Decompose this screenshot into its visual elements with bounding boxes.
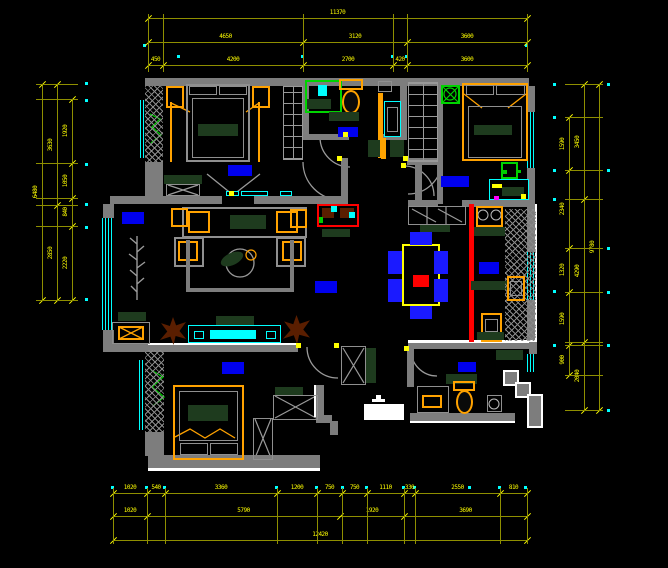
extension-line [147, 488, 148, 544]
sliding-door-panel-2 [241, 191, 268, 196]
dimension-label: 2550 [446, 485, 470, 491]
dimension-label: 3600 [455, 57, 479, 63]
dimension-label: 3690 [454, 508, 478, 514]
kitchen-counter-1 [474, 227, 505, 236]
bath2-east-wall [529, 342, 537, 354]
kitchen-hatched-counter [505, 209, 536, 341]
dimension-label: 9780 [590, 232, 596, 262]
dimension-label: 840 [63, 197, 69, 227]
reference-point [607, 247, 610, 250]
dimension-line [57, 84, 58, 300]
room-label-bedroom2 [441, 176, 469, 187]
reference-point [553, 290, 556, 293]
desk-dot-magenta [494, 196, 499, 200]
dimension-label: 1050 [63, 166, 69, 196]
extension-line [565, 84, 603, 85]
dimension-label: 3120 [343, 34, 367, 40]
dining-chair-e2 [434, 279, 448, 302]
hatch-wall-topleft [145, 86, 163, 162]
reference-point [85, 99, 88, 102]
dimension-label: 1590 [560, 304, 566, 334]
extension-line [565, 170, 603, 171]
bath2-south-edge [410, 421, 515, 423]
wall-living-north-b [146, 196, 222, 204]
reference-point [553, 198, 556, 201]
console-vase-2 [349, 212, 355, 218]
dimension-label: 750 [343, 485, 367, 491]
dimension-label: 5790 [232, 508, 256, 514]
shower-bench [307, 99, 331, 109]
bench-top [118, 326, 144, 340]
reference-point [85, 163, 88, 166]
window-bedroom2 [527, 112, 536, 168]
tv-speaker [216, 316, 254, 325]
dimension-label: 1590 [560, 129, 566, 159]
extension-line [407, 14, 408, 72]
bedroom3-south-edge [148, 468, 320, 471]
dimension-label: 330 [398, 485, 422, 491]
kitchen-counter-2 [471, 281, 508, 290]
extension-line [163, 14, 164, 72]
bedroom3-closet-v [253, 418, 273, 460]
extension-line [527, 14, 528, 72]
canopy-post-right [258, 102, 260, 162]
bed3-drawer-r [210, 443, 238, 455]
door-hinge-mark [334, 343, 339, 348]
corridor-cabinet [366, 348, 376, 383]
dimension-label: 750 [318, 485, 342, 491]
extension-line [36, 84, 78, 85]
shoe-cabinet-left [368, 140, 380, 157]
entry-door-leaf [381, 138, 386, 159]
dimension-label: 810 [502, 485, 526, 491]
dimension-line [148, 65, 527, 66]
dimension-label: 2220 [63, 248, 69, 278]
dining-chair-e1 [434, 251, 448, 274]
extension-line [565, 342, 603, 343]
bed3-drawer-l [180, 443, 208, 455]
room-label-hall [315, 281, 337, 293]
shower-head [318, 85, 327, 96]
sofa-front-bottom [186, 288, 294, 292]
step-3 [529, 396, 541, 426]
bath1-counter [329, 112, 359, 121]
kitchen-sink-basin [510, 281, 522, 296]
dining-table-center [413, 275, 429, 287]
reference-point [607, 344, 610, 347]
dimension-label: 3360 [209, 485, 233, 491]
tv-box-right [266, 331, 276, 339]
extension-line [565, 375, 603, 376]
sofa-cushion-left [188, 211, 210, 233]
reference-point [607, 409, 610, 412]
extension-line [36, 163, 78, 164]
reference-point [85, 298, 88, 301]
dining-chair-w2 [388, 279, 402, 302]
canopy-post-left [170, 102, 172, 162]
extension-line [342, 488, 343, 544]
door-hinge-mark [401, 163, 406, 168]
reference-point [177, 55, 180, 58]
extension-line [303, 14, 304, 72]
gas-stove [476, 206, 503, 227]
bedroom3-closet-h [273, 395, 318, 420]
kitchen-counter-3 [477, 332, 504, 340]
extension-line [317, 488, 318, 544]
reference-point [607, 83, 610, 86]
reference-point [85, 226, 88, 229]
sideboard-front [420, 225, 450, 232]
dimension-label: 3630 [48, 130, 54, 160]
ceiling-fan-box [441, 85, 460, 104]
room-label-bath1 [338, 127, 358, 137]
bedroom3-shelf [275, 387, 303, 395]
extension-line [565, 292, 603, 293]
door-hinge-mark [403, 156, 408, 161]
extension-line [36, 226, 78, 227]
reference-point [85, 82, 88, 85]
shoe-cabinet-right [390, 140, 404, 157]
side-table-left [171, 208, 188, 227]
bay-top-stub [103, 204, 114, 218]
washing-machine [487, 395, 502, 412]
dimension-line [113, 493, 527, 494]
reference-point [607, 169, 610, 172]
dimension-line [113, 516, 527, 517]
door-hinge-mark [296, 343, 301, 348]
potted-plant-left [160, 317, 186, 345]
extension-line [565, 199, 603, 200]
entry-threshold [364, 404, 404, 420]
bath1-right-wall [400, 78, 407, 140]
bed2-pillow [474, 125, 512, 135]
sofa-cushion-center [230, 215, 266, 229]
dimension-line [599, 84, 600, 410]
bath2-south-wall [410, 413, 515, 421]
reference-point [85, 203, 88, 206]
dimension-label: 1320 [560, 255, 566, 285]
extension-line [113, 488, 114, 544]
room-label-bedroom1 [228, 165, 252, 176]
floor-plan-canvas[interactable]: 1137046503120360045042002700420360010205… [0, 0, 668, 568]
wardrobe-bedroom1 [283, 86, 303, 160]
door-hinge-mark [343, 132, 348, 137]
dining-chair-w1 [388, 251, 402, 274]
nightstand-right [252, 86, 270, 108]
dimension-label: 2040 [575, 361, 581, 391]
sideboard [408, 206, 466, 225]
dimension-label: 4200 [221, 57, 245, 63]
corridor-wall [148, 345, 298, 352]
bedroom3-step-b [330, 421, 338, 435]
dimension-label: 1200 [285, 485, 309, 491]
dimension-label: 4650 [214, 34, 238, 40]
window-topleft [140, 100, 145, 158]
dimension-label: 12420 [308, 532, 332, 538]
bed1-headboard-l [189, 86, 217, 95]
extension-line [565, 410, 603, 411]
vanity-sink-inner [387, 107, 398, 132]
console-mat [322, 229, 350, 237]
dimension-label: 3450 [575, 127, 581, 157]
vanity2-sink [422, 395, 442, 408]
dimension-label: 2700 [336, 57, 360, 63]
door-mat [118, 312, 146, 321]
dresser-base [166, 184, 200, 196]
extension-line [36, 205, 78, 206]
dimension-line [584, 84, 585, 410]
green-mark-2 [516, 170, 521, 173]
dresser-top [164, 175, 202, 184]
dimension-line [42, 84, 43, 300]
toilet2-bowl [456, 390, 473, 414]
bed2-headboard-l [466, 85, 494, 95]
extension-line [404, 488, 405, 544]
tv-box-left [194, 331, 204, 339]
entry-glyph-a [372, 399, 385, 402]
hall-wall-left [341, 158, 348, 204]
nightstand-left [166, 86, 184, 108]
sofa-front-right [290, 240, 294, 292]
bed1-pillow [198, 124, 238, 136]
bath2-west-wall [407, 349, 414, 387]
wall-living-north-a [110, 196, 146, 204]
extension-line [565, 248, 603, 249]
side-table-right [290, 209, 307, 228]
curtain-branch-symbol [129, 236, 145, 300]
window-bath2 [527, 354, 536, 372]
extension-line [415, 488, 416, 544]
extension-line [565, 117, 603, 118]
corridor-closet [341, 346, 366, 385]
dimension-label: 1920 [63, 116, 69, 146]
wall-topleft-lower [145, 162, 163, 198]
door-hinge-mark [404, 346, 409, 351]
hatch-wall-bedroom3 [145, 350, 164, 432]
potted-plant-right [283, 315, 310, 344]
reference-point [553, 344, 556, 347]
toilet1-bowl [342, 90, 360, 114]
desk-item-yellow [492, 184, 502, 188]
extension-line [393, 14, 394, 72]
dimension-label: 1110 [374, 485, 398, 491]
dimension-label: 420 [388, 57, 412, 63]
kitchen-cart-inner [485, 319, 498, 332]
door-hinge-mark [337, 156, 342, 161]
room-label-living [122, 212, 144, 224]
sliding-door-panel-3 [280, 191, 292, 196]
bay-window [102, 218, 112, 330]
coffee-table-plant [219, 248, 256, 277]
extension-line [277, 488, 278, 544]
bed3-pillow [188, 405, 228, 421]
bed1-headboard-r [219, 86, 247, 95]
dimension-label: 11370 [326, 10, 350, 16]
dimension-line [113, 540, 527, 541]
dimension-line [148, 42, 527, 43]
sofa-front-left [186, 240, 190, 292]
door-hinge-mark [229, 191, 234, 196]
dimension-label: 1020 [118, 508, 142, 514]
extension-line [148, 14, 149, 72]
green-mark-1 [501, 170, 507, 174]
extension-line [527, 488, 528, 544]
extension-line [36, 300, 78, 301]
room-label-kitchen [479, 262, 499, 274]
window-bedroom3 [139, 360, 144, 430]
dimension-label: 1920 [360, 508, 384, 514]
dimension-line [148, 18, 527, 19]
bed2-headboard-r [496, 85, 525, 95]
toilet1-tank [339, 79, 363, 90]
extension-line [367, 488, 368, 544]
living-west-lower-wall [103, 344, 148, 352]
dimension-label: 2850 [48, 238, 54, 268]
extension-line [36, 99, 78, 100]
dimension-label: 1020 [118, 485, 142, 491]
dimension-label: 900 [560, 345, 566, 375]
bath1-fixture [378, 81, 392, 92]
dimension-label: 6480 [33, 177, 39, 207]
dining-chair-n [410, 232, 432, 245]
dimension-label: 4290 [575, 256, 581, 286]
extension-line [565, 345, 603, 346]
reference-point [607, 291, 610, 294]
room-label-bath2 [458, 362, 476, 372]
console-leaf [319, 217, 323, 223]
tv-screen [210, 330, 256, 339]
feature-wall-red [469, 204, 474, 342]
console-vase-1 [331, 206, 337, 212]
extension-line [500, 488, 501, 544]
dining-south-wall [408, 343, 535, 349]
bath2-cabinet [496, 350, 523, 360]
dimension-label: 3600 [455, 34, 479, 40]
entry-glyph-b [376, 395, 381, 399]
closet-hall [408, 82, 438, 162]
wall-living-north-c [254, 196, 346, 204]
reference-point [553, 116, 556, 119]
bedroom3-left-step [145, 432, 164, 456]
reference-point [553, 83, 556, 86]
extension-line [165, 488, 166, 544]
extension-line [36, 198, 78, 199]
dining-chair-s [410, 306, 432, 319]
reference-point [553, 169, 556, 172]
right-wall-upper [527, 86, 535, 112]
room-label-bedroom3 [222, 362, 244, 374]
door-hinge-mark [521, 194, 526, 199]
